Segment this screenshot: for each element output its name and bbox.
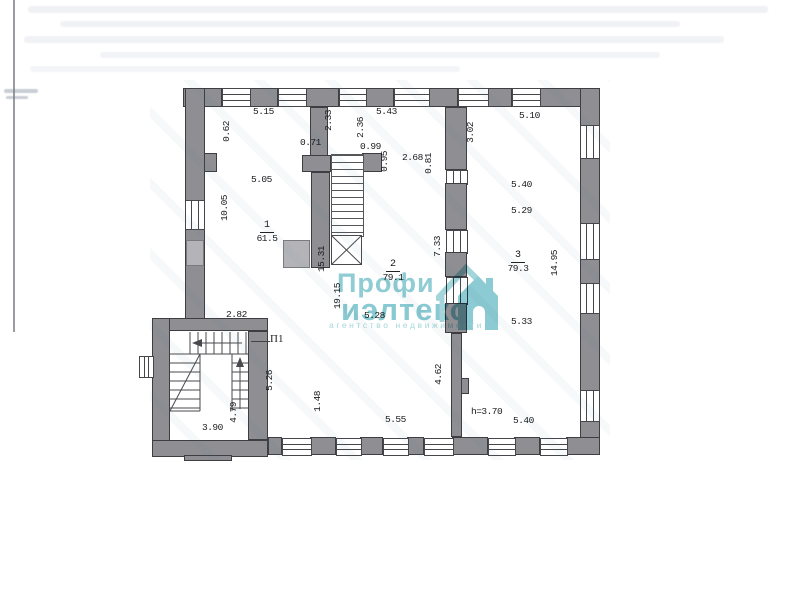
window bbox=[580, 283, 600, 314]
dimension-label-d_282: 2.82 bbox=[226, 310, 247, 320]
dimension-label-v_1531: 15.31 bbox=[317, 246, 327, 272]
wall-segment bbox=[452, 437, 488, 455]
page-edge-line bbox=[13, 0, 15, 332]
room-2-area: 79.1 bbox=[376, 272, 410, 283]
wall-segment bbox=[487, 88, 512, 107]
dimension-label-v_526: 5.26 bbox=[265, 370, 275, 391]
wall-segment bbox=[360, 437, 383, 455]
understair-closet bbox=[283, 240, 310, 268]
room-3-label: 379.3 bbox=[501, 244, 535, 274]
dimension-label-top_543: 5.43 bbox=[376, 107, 397, 117]
ghost-line bbox=[30, 66, 460, 72]
room-2-number: 2 bbox=[386, 260, 400, 272]
wall-segment bbox=[305, 88, 339, 107]
dimension-label-d_555: 5.55 bbox=[385, 415, 406, 425]
window bbox=[394, 88, 430, 107]
dimension-label-d_505: 5.05 bbox=[251, 175, 272, 185]
wall-segment bbox=[566, 437, 600, 455]
dimension-label-d_540b: 5.40 bbox=[513, 416, 534, 426]
dimension-label-v_1915: 19.15 bbox=[333, 283, 343, 309]
wall-segment bbox=[407, 437, 424, 455]
room-1-number: 1 bbox=[260, 221, 274, 233]
window bbox=[339, 88, 367, 107]
window bbox=[580, 223, 600, 260]
wall-segment bbox=[428, 88, 458, 107]
dimension-label-v_095: 0.95 bbox=[380, 151, 390, 172]
dimension-label-d_540a: 5.40 bbox=[511, 180, 532, 190]
wall-segment bbox=[268, 437, 282, 455]
room-1-label: 161.5 bbox=[250, 214, 284, 244]
dimension-label-d_390: 3.90 bbox=[202, 423, 223, 433]
dimension-label-v_062: 0.62 bbox=[222, 121, 232, 142]
wall-segment bbox=[445, 303, 467, 333]
dimension-label-v_733: 7.33 bbox=[433, 236, 443, 257]
window bbox=[580, 125, 600, 159]
dimension-label-v_479: 4.79 bbox=[229, 402, 239, 423]
wall-segment bbox=[365, 88, 394, 107]
dimension-label-d_533: 5.33 bbox=[511, 317, 532, 327]
dimension-label-d_528: 5.28 bbox=[364, 311, 385, 321]
wall-pilaster bbox=[461, 378, 469, 394]
staircase-tag: П1 bbox=[270, 333, 283, 345]
entrance-step bbox=[139, 356, 154, 378]
stair-cross-box bbox=[331, 235, 362, 265]
dimension-label-top_510: 5.10 bbox=[519, 111, 540, 121]
dimension-label-top_515: 5.15 bbox=[253, 107, 274, 117]
window bbox=[282, 438, 312, 456]
wall-segment bbox=[445, 252, 467, 277]
dimension-label-v_233: 2.33 bbox=[324, 110, 334, 131]
wall-segment bbox=[184, 455, 232, 461]
dimension-label-v_236: 2.36 bbox=[356, 117, 366, 138]
staircase-tag-leader bbox=[251, 341, 270, 342]
window bbox=[383, 438, 409, 456]
wall-pilaster bbox=[204, 153, 217, 172]
window bbox=[512, 88, 541, 107]
stair-arrow-head bbox=[192, 339, 202, 347]
wall-segment bbox=[445, 107, 467, 170]
window bbox=[222, 88, 251, 107]
wall-segment bbox=[514, 437, 540, 455]
ghost-line bbox=[24, 36, 724, 43]
window bbox=[278, 88, 307, 107]
main-staircase-treads bbox=[331, 154, 364, 237]
dimension-label-v_148: 1.48 bbox=[313, 391, 323, 412]
ghost-mark bbox=[4, 89, 38, 93]
window bbox=[424, 438, 454, 456]
window bbox=[488, 438, 516, 456]
dimension-label-v_462: 4.62 bbox=[434, 364, 444, 385]
wall-segment bbox=[445, 183, 467, 230]
door-opening bbox=[446, 277, 468, 305]
wall-segment bbox=[310, 437, 336, 455]
dimension-label-v_1495: 14.95 bbox=[550, 250, 560, 276]
door-opening bbox=[446, 230, 468, 254]
room-3-number: 3 bbox=[511, 251, 525, 263]
dimension-label-d_529: 5.29 bbox=[511, 206, 532, 216]
wall-segment-light bbox=[186, 240, 204, 266]
stair-arrow-head bbox=[236, 357, 244, 367]
dimension-label-d_099: 0.99 bbox=[360, 142, 381, 152]
window bbox=[580, 390, 600, 422]
dimension-label-d_h370: h=3.70 bbox=[471, 407, 502, 417]
dimension-label-v_302: 3.02 bbox=[466, 122, 476, 143]
dimension-label-d_268: 2.68 bbox=[402, 153, 423, 163]
dimension-label-v_081: 0.81 bbox=[424, 153, 434, 174]
ghost-line bbox=[28, 6, 768, 13]
ghost-line bbox=[60, 21, 680, 27]
room-2-label: 279.1 bbox=[376, 253, 410, 283]
room-3-area: 79.3 bbox=[501, 263, 535, 274]
wall-segment bbox=[249, 88, 278, 107]
window bbox=[458, 88, 489, 107]
room-1-area: 61.5 bbox=[250, 233, 284, 244]
ghost-line bbox=[100, 52, 660, 58]
window bbox=[336, 438, 362, 456]
window bbox=[185, 200, 205, 230]
window bbox=[540, 438, 568, 456]
dimension-label-v_1005: 10.05 bbox=[220, 195, 230, 221]
dimension-label-d_071: 0.71 bbox=[300, 138, 321, 148]
scanned-floorplan-page: 5.155.435.100.710.992.685.050.622.332.36… bbox=[0, 0, 800, 600]
wall-segment bbox=[302, 155, 331, 172]
ghost-mark bbox=[6, 96, 28, 99]
